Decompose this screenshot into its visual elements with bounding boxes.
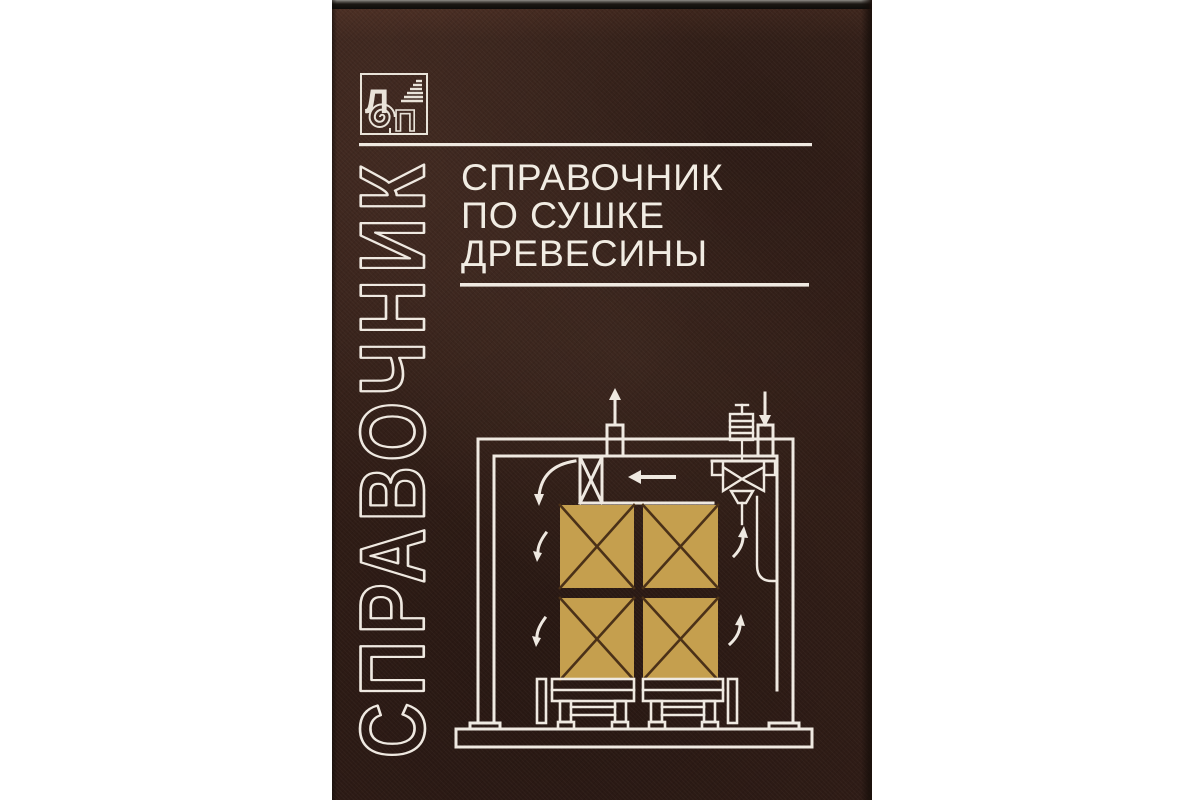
air-channel xyxy=(757,497,777,581)
logo-timber-stack-icon xyxy=(401,81,423,101)
lumber-stack xyxy=(643,505,718,588)
header-rule xyxy=(359,143,812,146)
book-top-edge xyxy=(332,0,872,9)
exhaust-arrowhead-icon xyxy=(609,388,621,400)
guide-post xyxy=(728,679,737,723)
drying-kiln-diagram xyxy=(456,388,812,747)
lumber-stack xyxy=(643,598,718,680)
heater-valve-icon xyxy=(712,461,775,524)
publisher-logo: Л П xyxy=(361,74,427,138)
kiln-foundation xyxy=(456,729,812,747)
title-underline-rule xyxy=(460,283,809,287)
title-line-2: ПО СУШКЕ xyxy=(461,194,665,236)
airflow-arrow-icon xyxy=(537,618,545,639)
book-cover: Л П xyxy=(332,0,872,800)
title-line-1: СПРАВОЧНИК xyxy=(461,156,724,198)
trolley xyxy=(552,679,634,729)
calorifer-icon xyxy=(730,405,753,440)
title-block: СПРАВОЧНИК ПО СУШКЕ ДРЕВЕСИНЫ xyxy=(461,156,724,274)
fan-icon xyxy=(580,457,602,503)
logo-letter-p: П xyxy=(394,103,416,138)
logo-letter-l: Л xyxy=(365,83,389,121)
airflow-arrow-icon xyxy=(538,533,546,554)
guide-post xyxy=(537,679,546,723)
book-cover-photo: Л П xyxy=(0,0,1200,800)
title-line-3: ДРЕВЕСИНЫ xyxy=(461,232,708,274)
lumber-stack xyxy=(560,505,634,588)
book-left-edge xyxy=(332,0,337,800)
airflow-arrow-icon xyxy=(539,461,575,496)
lumber-stack xyxy=(560,598,634,680)
spine-vertical-title: СПРАВОЧНИК xyxy=(342,158,444,758)
duct-flow-arrowhead-icon xyxy=(628,470,641,484)
lumber-stacks xyxy=(560,505,718,680)
book-right-edge xyxy=(861,0,872,800)
trolley xyxy=(643,679,723,729)
cover-artwork: Л П xyxy=(332,0,872,800)
